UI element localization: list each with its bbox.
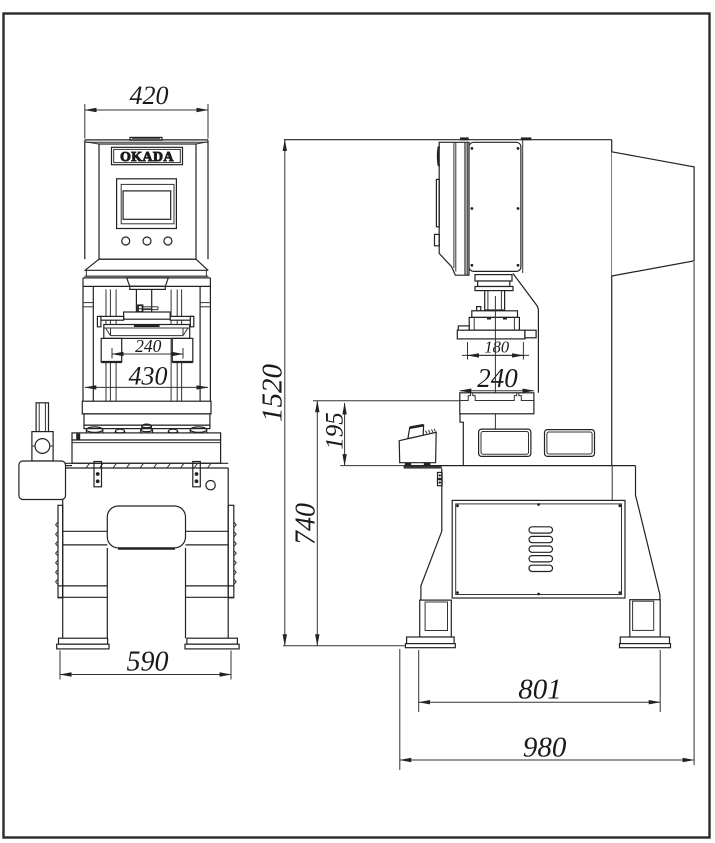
svg-text:430: 430 — [129, 362, 168, 391]
svg-text:740: 740 — [291, 503, 322, 545]
svg-text:980: 980 — [523, 731, 567, 763]
svg-text:420: 420 — [130, 81, 169, 110]
svg-text:1520: 1520 — [257, 364, 289, 423]
svg-text:OKADA: OKADA — [120, 149, 174, 164]
svg-text:240: 240 — [135, 336, 162, 356]
svg-text:180: 180 — [484, 338, 510, 357]
svg-text:240: 240 — [477, 363, 518, 393]
svg-text:590: 590 — [127, 647, 169, 678]
svg-text:195: 195 — [322, 412, 349, 450]
svg-text:801: 801 — [518, 674, 562, 706]
